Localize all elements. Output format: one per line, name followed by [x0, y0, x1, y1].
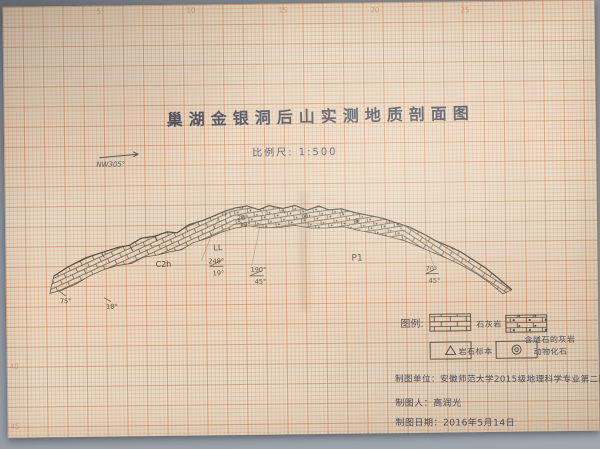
dip-annotation: 248° — [208, 257, 224, 265]
stratum-band — [49, 203, 512, 300]
legend-label: 岩石标本 — [459, 346, 493, 357]
dip-annotation: 19° — [213, 269, 225, 277]
dip-annotation: 45° — [255, 278, 267, 286]
photo-background: 5 10 15 20 25 40 45 巢湖金银洞后山实测地质剖面图 比例尺: … — [0, 0, 600, 449]
dip-annotation: 18° — [106, 303, 118, 311]
strat-label: P1 — [351, 254, 362, 264]
map-author-line: 制图人：高润光 — [395, 396, 462, 409]
legend-label: 石灰岩 — [476, 319, 502, 330]
dip-annotation: 45° — [429, 277, 441, 285]
dip-annotation: 70° — [426, 265, 438, 273]
triangle-icon — [446, 346, 456, 355]
dip-annotation: 19° — [239, 221, 251, 229]
dip-annotation: 190° — [251, 266, 267, 274]
legend-label: 动物化石 — [534, 346, 568, 357]
strat-label: LL — [213, 243, 223, 252]
fossil-circle-icon — [512, 345, 521, 354]
dip-annotation: 75° — [60, 297, 72, 305]
legend-heading: 图例: — [400, 315, 424, 330]
map-unit-line: 制图单位：安徽师范大学2015级地理科学专业第二队六组 — [395, 373, 600, 385]
map-date-line: 制图日期：2016年5月14日 — [395, 415, 515, 428]
strat-label: C2h — [155, 260, 171, 269]
graph-paper: 5 10 15 20 25 40 45 巢湖金银洞后山实测地质剖面图 比例尺: … — [2, 0, 599, 438]
north-arrow-icon — [99, 152, 138, 158]
